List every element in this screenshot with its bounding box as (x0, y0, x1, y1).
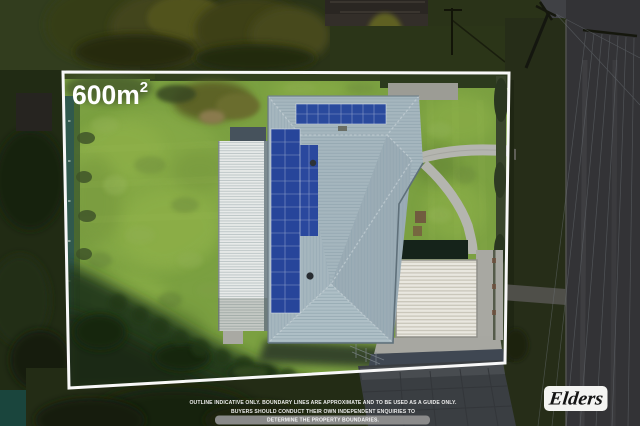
svg-text:Elders: Elders (547, 389, 604, 410)
svg-text:600m2: 600m2 (72, 79, 148, 110)
svg-text:BUYERS SHOULD CONDUCT THEIR OW: BUYERS SHOULD CONDUCT THEIR OWN INDEPEND… (231, 409, 415, 415)
svg-text:DETERMINE THE PROPERTY BOUNDAR: DETERMINE THE PROPERTY BOUNDARIES. (267, 417, 380, 423)
svg-text:OUTLINE INDICATIVE ONLY. BOUND: OUTLINE INDICATIVE ONLY. BOUNDARY LINES … (189, 400, 457, 406)
